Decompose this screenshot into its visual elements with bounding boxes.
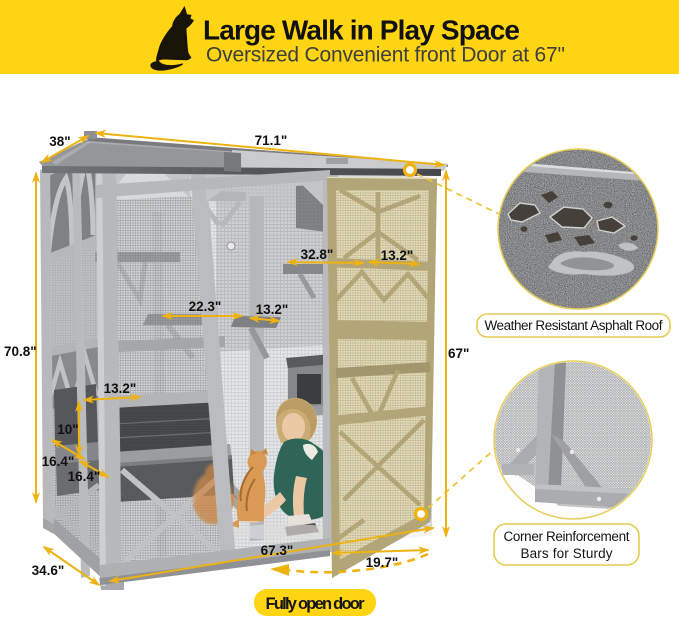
svg-text:38": 38" — [49, 134, 70, 149]
svg-text:32.8": 32.8" — [301, 247, 334, 262]
svg-text:Corner Reinforcement: Corner Reinforcement — [504, 529, 630, 544]
svg-text:71.1": 71.1" — [255, 133, 288, 148]
svg-text:Bars for Sturdy: Bars for Sturdy — [521, 546, 613, 561]
svg-text:Oversized Convenient front Doo: Oversized Convenient front Door at 67" — [206, 44, 565, 67]
svg-text:10": 10" — [57, 422, 78, 437]
svg-text:13.2": 13.2" — [104, 381, 137, 396]
svg-text:13.2": 13.2" — [381, 248, 414, 263]
svg-text:Weather Resistant Asphalt Roof: Weather Resistant Asphalt Roof — [485, 318, 663, 333]
svg-text:19.7": 19.7" — [366, 555, 399, 570]
svg-text:Fully open door: Fully open door — [266, 595, 366, 613]
svg-text:34.6": 34.6" — [32, 563, 65, 578]
svg-text:Large Walk in Play Space: Large Walk in Play Space — [203, 15, 520, 46]
svg-text:67.3": 67.3" — [261, 543, 294, 558]
svg-text:13.2": 13.2" — [256, 302, 289, 317]
svg-text:16.4": 16.4" — [68, 469, 101, 484]
svg-text:70.8": 70.8" — [4, 344, 37, 359]
svg-text:22.3": 22.3" — [189, 299, 222, 314]
svg-text:16.4": 16.4" — [42, 454, 75, 469]
svg-text:67": 67" — [448, 346, 469, 361]
